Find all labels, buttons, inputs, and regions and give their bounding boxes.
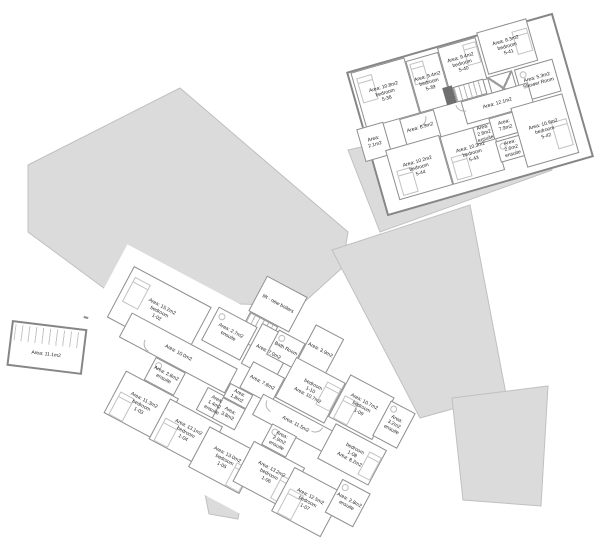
room-label: Area: 2.8m2ensuite bbox=[150, 365, 180, 388]
storage-racks bbox=[14, 324, 83, 348]
room-label: Area: 13.1m2bedroom1-04 bbox=[168, 418, 203, 448]
room-label: lift - new boilers bbox=[261, 293, 294, 315]
outbuilding-plan: Area: 11.1m2 bbox=[6, 320, 87, 375]
room-label: Area: 3.8m2 bbox=[216, 403, 242, 424]
room-label: Area: 11.3m2bedroom1-03 bbox=[124, 391, 159, 421]
room-label: Area: 2.7m2ensuite bbox=[215, 322, 245, 345]
room-label: Area: 10.0m2 bbox=[164, 343, 193, 362]
wc-fixture bbox=[217, 312, 226, 321]
room-label: Area: 11.1m2 bbox=[31, 350, 61, 360]
room-label: Area: 8.3m2bedroom5-41 bbox=[492, 34, 523, 59]
room-label: Area: 7.8m2 bbox=[249, 374, 276, 392]
floor-plan-canvas: Area: 10.8m2bedroom5-38 Area: 9.4m2bedro… bbox=[0, 0, 600, 552]
room-label: Area: 10.2m2bedroom5-44 bbox=[402, 155, 436, 181]
room-label: Area: 10.3m2bedroom5-43 bbox=[455, 141, 489, 167]
room-label: Area: 3.9m2 bbox=[307, 341, 334, 359]
room-label: Area: 2.1m2 bbox=[361, 133, 388, 151]
room-label: Area: 2.6m2ensuite bbox=[497, 136, 526, 160]
wc-fixture bbox=[340, 483, 349, 492]
room-label: Area: 3.2m2ensuite bbox=[379, 411, 409, 438]
roof-silhouette-bottom-right bbox=[452, 386, 548, 506]
roof-silhouette-left bbox=[28, 88, 348, 306]
room-store-outbuilding: Area: 11.1m2 bbox=[6, 320, 87, 375]
room-label: Area: 12.5m2bedroom1-07 bbox=[290, 487, 325, 517]
room-label: Area: 7.9m2 bbox=[491, 116, 518, 134]
room-label: Area: 12.1m2 bbox=[482, 96, 513, 110]
room-label: Area: 9.4m2bedroom5-40 bbox=[447, 51, 478, 76]
room-label: Area: 2.8m2ensuite bbox=[333, 491, 363, 514]
